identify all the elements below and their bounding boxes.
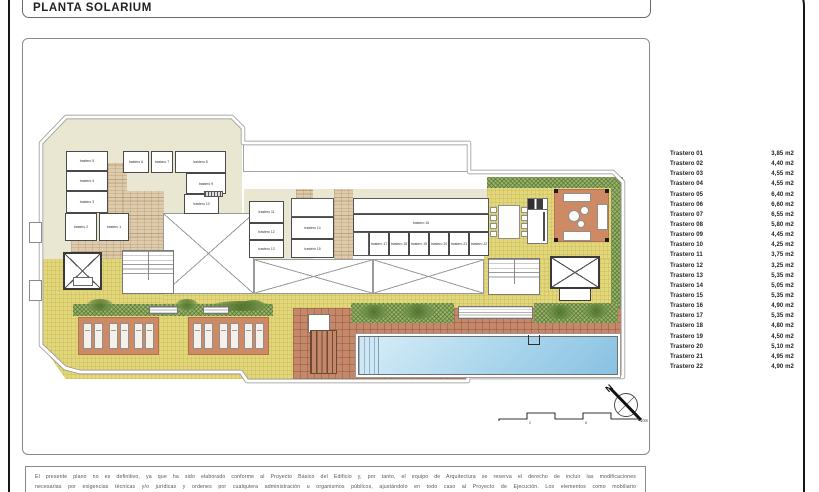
- trastero-area-value: 4,25 m2: [771, 242, 794, 248]
- corridor: [291, 198, 334, 217]
- room-trastero-21: trastero 21: [449, 232, 469, 256]
- sun-lounger: [109, 323, 118, 349]
- sun-lounger: [193, 323, 202, 349]
- lounger-mat: [188, 317, 269, 355]
- disclaimer-box: El presente plano no es definitivo, ya q…: [25, 466, 646, 492]
- sun-lounger: [120, 323, 129, 349]
- dining-chair: [490, 231, 497, 237]
- dining-table: [498, 205, 520, 239]
- trastero-label: Trastero 02: [670, 161, 703, 167]
- room-trastero-6: trastero 6: [123, 151, 149, 173]
- floor-plan-canvas: N 2 6 10m trastero 5 trastero 4 trastero…: [22, 38, 650, 455]
- table-row: Trastero 224,90 m2: [658, 362, 806, 372]
- sun-lounger: [134, 323, 143, 349]
- trastero-label: Trastero 03: [670, 171, 703, 177]
- table-row: Trastero 184,80 m2: [658, 321, 806, 331]
- pool-ladder: [528, 335, 540, 345]
- elevator-shaft: [63, 252, 102, 290]
- table-row: Trastero 104,25 m2: [658, 240, 806, 250]
- lounge-rug: [554, 189, 609, 242]
- trastero-area-value: 4,90 m2: [771, 364, 794, 370]
- room-trastero-4: trastero 4: [66, 171, 108, 191]
- sun-lounger: [230, 323, 239, 349]
- pergola-post: [554, 189, 558, 193]
- trastero-label: Trastero 20: [670, 344, 703, 350]
- trastero-area-value: 5,10 m2: [771, 344, 794, 350]
- staircase: [122, 250, 174, 294]
- room-trastero-8: trastero 8: [175, 151, 226, 173]
- trastero-label: Trastero 18: [670, 323, 703, 329]
- trastero-label: Trastero 21: [670, 354, 703, 360]
- trastero-area-value: 5,80 m2: [771, 222, 794, 228]
- sun-lounger: [94, 323, 103, 349]
- trastero-label: Trastero 09: [670, 232, 703, 238]
- table-row: Trastero 164,90 m2: [658, 301, 806, 311]
- lounger-mat: [78, 317, 159, 355]
- pergola-post: [605, 189, 609, 193]
- trastero-area-value: 5,35 m2: [771, 313, 794, 319]
- sun-lounger: [255, 323, 264, 349]
- corridor: [353, 232, 369, 256]
- table-row: Trastero 145,05 m2: [658, 281, 806, 291]
- room-trastero-22: trastero 22: [469, 232, 489, 256]
- coffee-table: [580, 206, 589, 215]
- scale-bar: 2 6 10m: [499, 413, 649, 425]
- room-trastero-5: trastero 5: [66, 151, 108, 171]
- table-row: Trastero 056,40 m2: [658, 190, 806, 200]
- elevator-lobby: [559, 289, 591, 301]
- room-trastero-12: trastero 12: [249, 223, 284, 240]
- table-row: Trastero 066,60 m2: [658, 200, 806, 210]
- dining-chair: [490, 223, 497, 229]
- north-compass: N: [603, 382, 641, 420]
- table-row: Trastero 113,75 m2: [658, 250, 806, 260]
- trastero-area-value: 4,95 m2: [771, 354, 794, 360]
- trastero-label: Trastero 13: [670, 273, 703, 279]
- room-trastero-1: trastero 1: [99, 213, 129, 241]
- trastero-label: Trastero 08: [670, 222, 703, 228]
- trastero-area-value: 4,40 m2: [771, 161, 794, 167]
- table-row: Trastero 175,35 m2: [658, 311, 806, 321]
- table-row: Trastero 194,50 m2: [658, 332, 806, 342]
- trastero-label: Trastero 17: [670, 313, 703, 319]
- table-row: Trastero 076,55 m2: [658, 210, 806, 220]
- table-row: Trastero 094,45 m2: [658, 230, 806, 240]
- trastero-area-value: 4,80 m2: [771, 323, 794, 329]
- trastero-area-value: 4,55 m2: [771, 181, 794, 187]
- trastero-area-value: 4,50 m2: [771, 334, 794, 340]
- room-trastero-14: trastero 14: [291, 217, 334, 239]
- sun-lounger: [244, 323, 253, 349]
- room-trastero-11: trastero 11: [249, 201, 284, 223]
- trastero-area-value: 3,25 m2: [771, 263, 794, 269]
- trastero-area-value: 4,55 m2: [771, 171, 794, 177]
- page-title: PLANTA SOLARIUM: [33, 2, 152, 14]
- trastero-label: Trastero 15: [670, 293, 703, 299]
- table-row: Trastero 044,55 m2: [658, 179, 806, 189]
- room-trastero-19: trastero 19: [409, 232, 429, 256]
- trastero-label: Trastero 14: [670, 283, 703, 289]
- vent-grille: [204, 191, 223, 197]
- trastero-label: Trastero 16: [670, 303, 703, 309]
- sun-lounger: [204, 323, 213, 349]
- room-trastero-20: trastero 20: [429, 232, 449, 256]
- table-row: Trastero 085,80 m2: [658, 220, 806, 230]
- trastero-area-value: 5,05 m2: [771, 283, 794, 289]
- table-row: Trastero 205,10 m2: [658, 342, 806, 352]
- trastero-label: Trastero 12: [670, 263, 703, 269]
- storage-area-table: Trastero 013,85 m2Trastero 024,40 m2Tras…: [658, 149, 806, 372]
- trastero-label: Trastero 11: [670, 252, 703, 258]
- trastero-label: Trastero 22: [670, 364, 703, 370]
- floor-plan: N 2 6 10m trastero 5 trastero 4 trastero…: [22, 38, 650, 455]
- dining-chair: [490, 215, 497, 221]
- pergola-post: [605, 238, 609, 242]
- trastero-label: Trastero 07: [670, 212, 703, 218]
- facade-unit: [29, 280, 42, 301]
- trastero-area-value: 3,85 m2: [771, 151, 794, 157]
- room-trastero-18: trastero 18: [389, 232, 409, 256]
- trastero-label: Trastero 01: [670, 151, 703, 157]
- room-trastero-13: trastero 13: [249, 240, 284, 258]
- room-trastero-2: trastero 2: [65, 213, 97, 241]
- table-row: Trastero 214,95 m2: [658, 352, 806, 362]
- trastero-area-value: 4,45 m2: [771, 232, 794, 238]
- facade-unit: [29, 222, 42, 243]
- table-row: Trastero 034,55 m2: [658, 169, 806, 179]
- trastero-area-value: 6,40 m2: [771, 192, 794, 198]
- trastero-label: Trastero 19: [670, 334, 703, 340]
- room-trastero-17: trastero 17: [369, 232, 389, 256]
- table-row: Trastero 123,25 m2: [658, 261, 806, 271]
- kitchen-counter: [527, 198, 548, 244]
- sun-lounger: [83, 323, 92, 349]
- sun-lounger: [219, 323, 228, 349]
- table-row: Trastero 024,40 m2: [658, 159, 806, 169]
- disclaimer-line-2: necesarias por exigencias técnicas y/o j…: [35, 483, 636, 492]
- trastero-area-value: 5,35 m2: [771, 273, 794, 279]
- table-row: Trastero 013,85 m2: [658, 149, 806, 159]
- pool-steps: [359, 337, 379, 374]
- disclaimer-line-1: El presente plano no es definitivo, ya q…: [35, 473, 636, 483]
- trastero-area-value: 4,90 m2: [771, 303, 794, 309]
- scale-end-label: 10m: [640, 418, 649, 423]
- trastero-area-value: 6,55 m2: [771, 212, 794, 218]
- coffee-table: [577, 220, 585, 228]
- trastero-label: Trastero 04: [670, 181, 703, 187]
- pergola-post: [554, 238, 558, 242]
- sofa: [563, 193, 591, 202]
- room-trastero-7: trastero 7: [151, 151, 173, 173]
- sofa: [597, 204, 608, 230]
- title-box: PLANTA SOLARIUM: [22, 0, 651, 18]
- scale-tick-2: 2: [529, 421, 531, 425]
- staircase: [488, 258, 540, 295]
- elevator-shaft: [550, 256, 600, 289]
- trastero-label: Trastero 10: [670, 242, 703, 248]
- table-row: Trastero 135,35 m2: [658, 271, 806, 281]
- room-trastero-3: trastero 3: [66, 191, 108, 213]
- trastero-label: Trastero 05: [670, 192, 703, 198]
- room-trastero-10: trastero 10: [184, 194, 219, 214]
- dining-chair: [490, 207, 497, 213]
- table-row: Trastero 155,35 m2: [658, 291, 806, 301]
- trastero-area-value: 5,35 m2: [771, 293, 794, 299]
- trastero-area-value: 6,60 m2: [771, 202, 794, 208]
- trastero-area-value: 3,75 m2: [771, 252, 794, 258]
- sun-lounger: [145, 323, 154, 349]
- building-outline: N 2 6 10m: [22, 38, 650, 455]
- swimming-pool: [358, 336, 618, 375]
- room-trastero-15: trastero 15: [291, 239, 334, 258]
- corridor: [353, 198, 489, 214]
- room-trastero-16: trastero 16: [353, 214, 489, 232]
- trastero-label: Trastero 06: [670, 202, 703, 208]
- scale-tick-6: 6: [585, 421, 587, 425]
- deck-stairs: [310, 330, 337, 374]
- sofa: [563, 231, 591, 241]
